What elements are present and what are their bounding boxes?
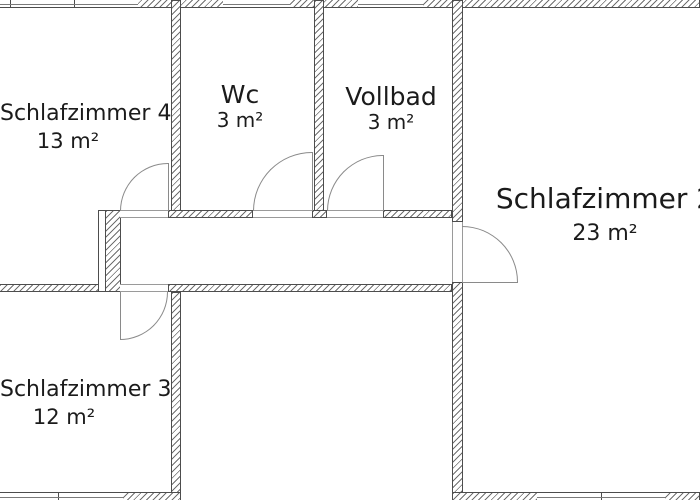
door-leaf-schlafzimmer-3 — [120, 292, 121, 340]
door-leaf-schlafzimmer-4 — [168, 163, 169, 211]
room-area: 13 m² — [0, 130, 136, 152]
window-top-wc — [223, 0, 290, 8]
door-leaf-vollbad — [383, 155, 384, 211]
window-mullion — [601, 493, 602, 500]
wall-corridor-top-a — [168, 210, 253, 218]
window-mullion — [58, 493, 59, 500]
door-arc-schlafzimmer-4 — [120, 163, 168, 211]
door-arc-schlafzimmer-3 — [120, 292, 168, 340]
window-mullion — [10, 0, 11, 8]
room-area: 23 m² — [495, 222, 700, 246]
room-label-schlafzimmer-4: Schlafzimmer 4 13 m² — [0, 102, 136, 152]
room-name: Wc — [178, 82, 302, 108]
window-bottom-schlafzimmer3 — [0, 492, 123, 500]
corridor-end-pier — [105, 210, 121, 292]
door-opening-vollbad — [327, 210, 383, 218]
room-name: Schlafzimmer 3 — [0, 378, 128, 402]
room-area: 3 m² — [326, 111, 456, 133]
door-arc-vollbad — [327, 155, 383, 211]
wall-wc-vollbad — [314, 0, 324, 218]
wall-corridor-top-c — [383, 210, 452, 218]
door-opening-schlafzimmer-3 — [120, 284, 168, 292]
window-top-vollbad — [358, 0, 423, 8]
window-bottom-schlafzimmer2 — [537, 492, 665, 500]
floor-plan: Schlafzimmer 4 13 m² Wc 3 m² Vollbad 3 m… — [0, 0, 700, 500]
room-name: Vollbad — [326, 84, 456, 110]
window-mullion — [74, 0, 75, 8]
wall-corridor-bottom-b — [168, 284, 452, 292]
room-name: Schlafzimmer 2 — [495, 184, 700, 214]
wall-schlafzimmer3-right — [171, 292, 181, 500]
room-label-wc: Wc 3 m² — [178, 82, 302, 131]
room-label-schlafzimmer-3: Schlafzimmer 3 12 m² — [0, 378, 128, 428]
room-name: Schlafzimmer 4 — [0, 102, 136, 126]
room-area: 12 m² — [0, 406, 128, 428]
wall-corridor-top-b — [312, 210, 327, 218]
room-area: 3 m² — [178, 109, 302, 131]
wall-corridor-bottom-a — [0, 284, 100, 292]
room-label-schlafzimmer-2: Schlafzimmer 2 23 m² — [495, 184, 700, 246]
wall-schlafzimmer2-lower — [452, 282, 463, 500]
door-leaf-schlafzimmer-2 — [462, 282, 518, 283]
door-leaf-wc — [312, 152, 313, 211]
door-arc-wc — [253, 152, 312, 211]
room-label-vollbad: Vollbad 3 m² — [326, 84, 456, 133]
door-opening-schlafzimmer-4 — [120, 210, 168, 218]
door-opening-wc — [253, 210, 312, 218]
window-top-schlafzimmer-4 — [0, 0, 138, 8]
